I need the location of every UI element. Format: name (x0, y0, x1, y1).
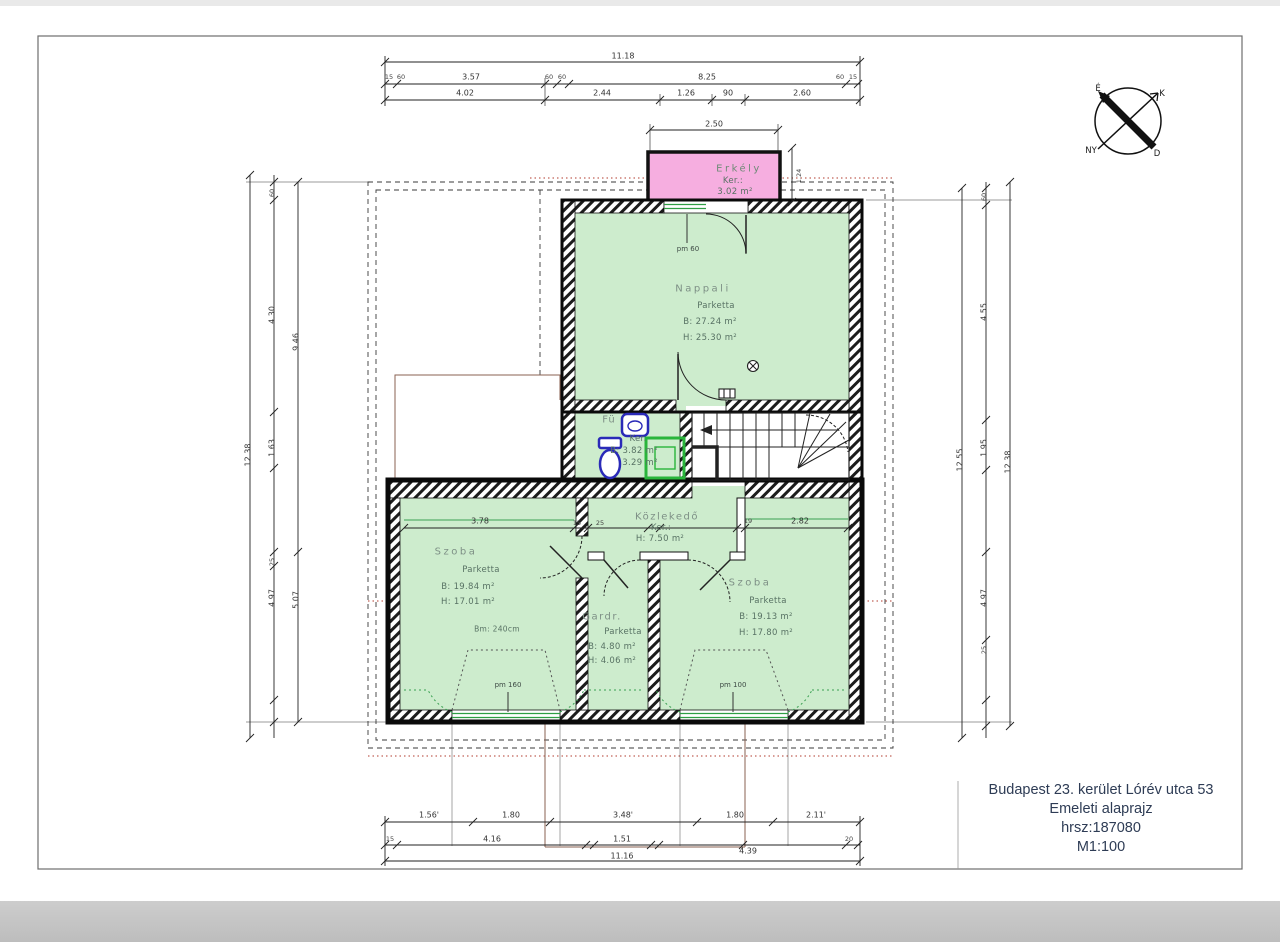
room-area-b-furdo: B: 3.82 m² (610, 446, 658, 456)
dim-label: 2.44 (593, 89, 611, 98)
parapet-label-right-window: pm 100 (720, 681, 747, 689)
compass-west-label: NY (1085, 146, 1097, 156)
room-area-erkely: 3.02 m² (717, 187, 752, 197)
dim-label: 15 (849, 73, 857, 81)
dim-label: 25 (268, 558, 276, 566)
dim-label: 1.80 (502, 811, 520, 820)
title-block: Budapest 23. kerület Lórév utca 53 Emele… (958, 781, 1244, 857)
dim-label: 60 (836, 73, 844, 81)
room-label-erkely: Erkély (716, 164, 762, 175)
dim-label: 2.60 (793, 89, 811, 98)
compass-north-label: É (1095, 84, 1100, 94)
dim-label: 1.80 (726, 811, 744, 820)
dim-label: 2.82 (791, 517, 809, 526)
balcony-slab (648, 152, 780, 202)
title-drawing-name: Emeleti alaprajz (958, 800, 1244, 819)
dim-label: 2.11' (806, 811, 826, 820)
room-area-h-furdo: 3.29 m² (622, 458, 657, 468)
room-area-b-szoba-right: B: 19.13 m² (739, 612, 792, 622)
dim-label: 5.07 (292, 591, 301, 609)
dim-right-total: 12.55 (956, 449, 965, 472)
title-parcel-number: hrsz:187080 (958, 819, 1244, 838)
dim-label: 60 (268, 189, 276, 197)
room-area-h-szoba-right: H: 17.80 m² (739, 628, 793, 638)
room-label-furdo: Fü (602, 415, 616, 426)
dim-label: 3.78 (471, 517, 489, 526)
room-area-b-szoba-left: B: 19.84 m² (441, 582, 494, 592)
room-floor-furdo: Ker. (630, 434, 647, 444)
room-floor-kozlekedo: Ker.: (651, 523, 671, 533)
dim-label: 60 (980, 193, 988, 201)
dim-label: 4.97 (980, 589, 989, 607)
dim-label: 15 (385, 73, 393, 81)
dim-label: 1.95 (980, 439, 989, 457)
dim-label: 20 (845, 835, 853, 843)
dim-label: 60 (558, 73, 566, 81)
compass-rose (1095, 88, 1161, 154)
dim-label: 15 (573, 519, 581, 527)
room-floor-gardrob: Parketta (604, 627, 642, 637)
dim-label: 90 (723, 89, 733, 98)
room-floor-erkely: Ker.: (723, 176, 743, 186)
dim-label: 3.57 (462, 73, 480, 82)
room-label-szoba-right: Szoba (729, 578, 772, 589)
dim-label: 25 (980, 646, 988, 654)
room-label-szoba-left: Szoba (435, 547, 478, 558)
dim-label: 4.30 (268, 306, 277, 324)
dim-label: 1.63 (268, 439, 277, 457)
dim-label: 15 (386, 835, 394, 843)
dim-label: 4.02 (456, 89, 474, 98)
room-label-gardrob: Gardr. (582, 612, 622, 623)
dim-label: 1.56' (419, 811, 439, 820)
floor-plan-page: Nappali Parketta B: 27.24 m² H: 25.30 m²… (0, 0, 1280, 942)
dim-left-total: 12.38 (244, 444, 253, 467)
title-address: Budapest 23. kerület Lórév utca 53 (958, 781, 1244, 800)
dim-label: 1.26 (677, 89, 695, 98)
compass-south-label: D (1154, 149, 1161, 159)
dim-label: 60 (397, 73, 405, 81)
room-floor-szoba-right: Parketta (749, 596, 787, 606)
dim-balcony-depth: 1.24 (795, 169, 803, 183)
dim-top-total: 11.18 (612, 52, 635, 61)
compass-east-label: K (1159, 89, 1165, 99)
dim-label: 3.48' (613, 811, 633, 820)
dim-label: 19 (744, 517, 752, 525)
dim-right-inner-total: 12.38 (1004, 451, 1013, 474)
room-height-note-szoba-left: Bm: 240cm (474, 625, 520, 634)
room-area-b-gardrob: B: 4.80 m² (588, 642, 636, 652)
dim-balcony-width: 2.50 (705, 120, 723, 129)
dim-label: 9.46 (292, 333, 301, 351)
room-floor-nappali: Parketta (697, 301, 735, 311)
parapet-label-left-window: pm 160 (495, 681, 522, 689)
room-area-b-nappali: B: 27.24 m² (683, 317, 736, 327)
room-label-nappali: Nappali (675, 284, 731, 295)
room-area-h-kozlekedo: H: 7.50 m² (636, 534, 684, 544)
room-floor-szoba-left: Parketta (462, 565, 500, 575)
sink-icon (622, 414, 648, 436)
dim-bottom-total: 11.16 (611, 852, 634, 861)
dim-label: 4.39 (739, 847, 757, 856)
dim-label: 4.55 (980, 303, 989, 321)
dim-label: 4.16 (483, 835, 501, 844)
room-area-h-szoba-left: H: 17.01 m² (441, 597, 495, 607)
parapet-label-balcony: pm 60 (677, 245, 699, 253)
room-label-kozlekedo: Közlekedő (635, 512, 699, 523)
wall-fixture-icon (719, 389, 735, 398)
room-area-h-nappali: H: 25.30 m² (683, 333, 737, 343)
dim-label: 1.51 (613, 835, 631, 844)
dim-label: 8.25 (698, 73, 716, 82)
dim-label: 4.97 (268, 589, 277, 607)
dim-label: 25 (596, 519, 604, 527)
room-area-h-gardrob: H: 4.06 m² (588, 656, 636, 666)
dim-label: 60 (545, 73, 553, 81)
title-scale: M1:100 (958, 838, 1244, 857)
